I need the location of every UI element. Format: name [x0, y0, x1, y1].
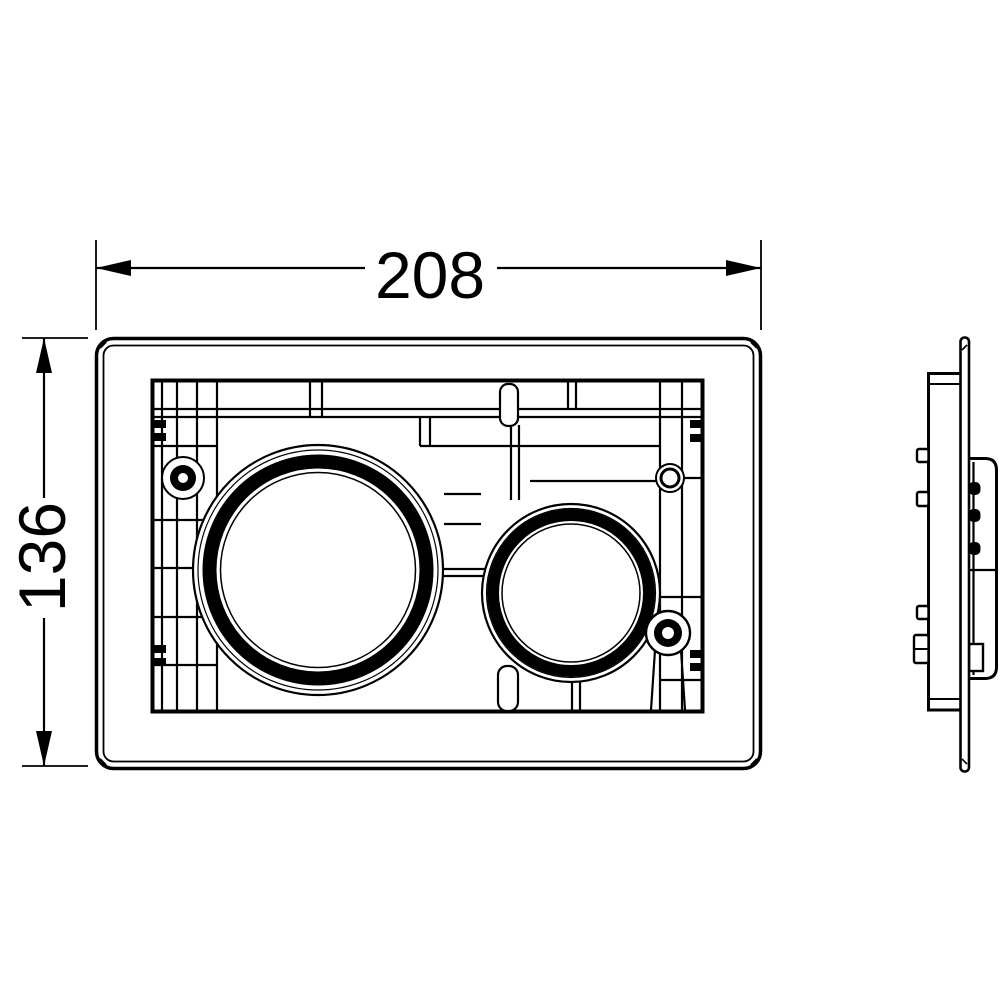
- side-view: [914, 338, 997, 772]
- top-center-slot: [500, 384, 518, 426]
- height-dimension-label: 136: [5, 502, 79, 612]
- screw-boss-top-right: [656, 464, 684, 492]
- height-arrow-bottom-icon: [36, 731, 52, 766]
- screw-boss-bottom-right: [646, 611, 690, 655]
- technical-drawing-page: 208 136: [0, 0, 1000, 1000]
- large-button-opening: [192, 444, 444, 696]
- width-dimension-label: 208: [375, 238, 485, 312]
- flush-plate-technical-drawing: 208 136: [0, 0, 1000, 1000]
- side-face-plate: [961, 338, 970, 772]
- height-arrow-top-icon: [36, 338, 52, 373]
- side-mounting-tabs: [914, 449, 929, 663]
- width-arrow-left-icon: [96, 260, 131, 276]
- screw-boss-top-left: [162, 457, 204, 499]
- side-housing-body: [929, 374, 962, 711]
- front-view: [97, 339, 761, 769]
- width-arrow-right-icon: [726, 260, 761, 276]
- side-bottom-latch: [969, 644, 983, 671]
- small-button-opening: [481, 503, 661, 683]
- bottom-center-slot: [498, 666, 518, 711]
- side-connector-pins: [969, 482, 981, 555]
